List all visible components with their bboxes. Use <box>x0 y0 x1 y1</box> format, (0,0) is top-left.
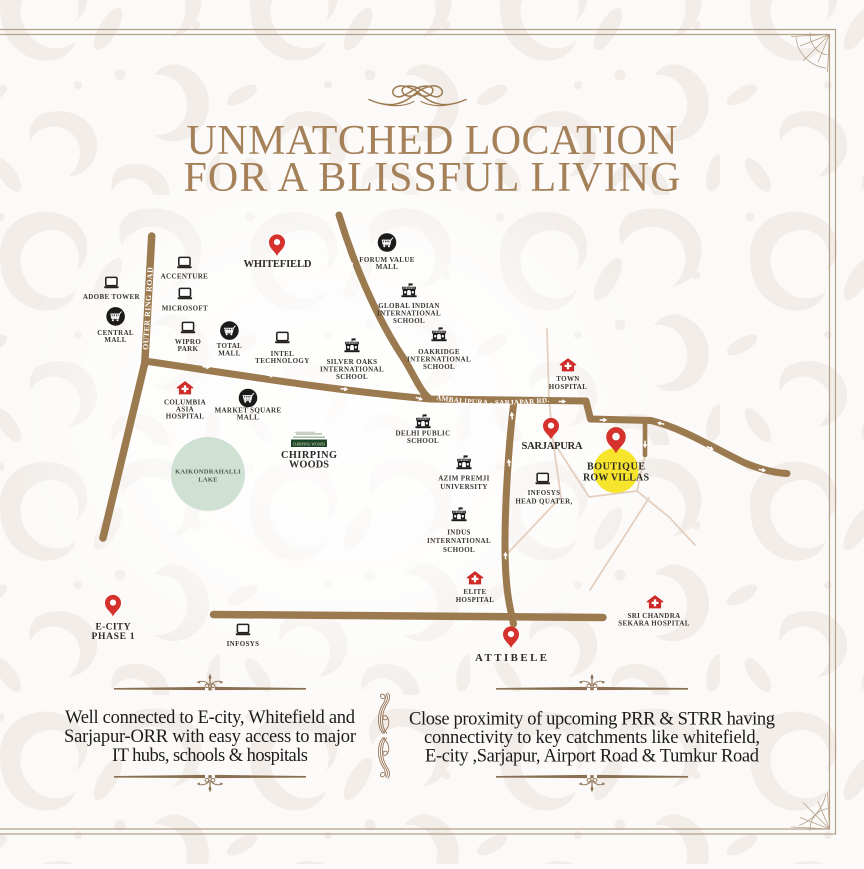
svg-text:LAKE: LAKE <box>198 477 218 484</box>
svg-text:Well connected to E-city, Whit: Well connected to E-city, Whitefield and <box>65 708 356 728</box>
svg-text:SCHOOL: SCHOOL <box>336 373 368 381</box>
svg-text:FOR A BLISSFUL LIVING: FOR A BLISSFUL LIVING <box>184 155 681 201</box>
svg-text:SCHOOL: SCHOOL <box>407 437 439 445</box>
svg-text:WOODS: WOODS <box>289 460 329 471</box>
svg-text:BOUTIQUE: BOUTIQUE <box>587 461 645 472</box>
svg-text:ATTIBELE: ATTIBELE <box>475 652 547 664</box>
svg-text:INFOSYS: INFOSYS <box>227 640 260 648</box>
svg-text:E-city ,Sarjapur, Airport Road: E-city ,Sarjapur, Airport Road & Tumkur … <box>425 747 760 767</box>
svg-text:ROW VILLAS: ROW VILLAS <box>583 472 649 483</box>
svg-text:WHITEFIELD: WHITEFIELD <box>244 259 312 270</box>
svg-text:INDUS: INDUS <box>447 528 471 536</box>
svg-text:CHIRPING WOODS: CHIRPING WOODS <box>293 442 325 446</box>
svg-text:PARK: PARK <box>178 345 199 353</box>
svg-text:TOWN: TOWN <box>556 375 579 383</box>
svg-text:TECHNOLOGY: TECHNOLOGY <box>255 357 309 365</box>
svg-text:MICROSOFT: MICROSOFT <box>162 304 208 312</box>
svg-text:MALL: MALL <box>218 349 240 357</box>
svg-text:KAIKONDRAHALLI: KAIKONDRAHALLI <box>175 469 241 476</box>
svg-text:HEAD QUATER,: HEAD QUATER, <box>515 498 572 506</box>
svg-text:INTERNATIONAL: INTERNATIONAL <box>427 537 491 545</box>
svg-text:HOSPITAL: HOSPITAL <box>166 412 204 420</box>
svg-text:SARJAPURA: SARJAPURA <box>522 441 583 452</box>
svg-text:UNIVERSITY: UNIVERSITY <box>440 483 487 491</box>
svg-text:AZIM PREMJI: AZIM PREMJI <box>438 474 490 482</box>
svg-text:SEKARA HOSPITAL: SEKARA HOSPITAL <box>618 619 689 627</box>
svg-text:ACCENTURE: ACCENTURE <box>161 272 209 280</box>
svg-text:Sarjapur-ORR with easy access: Sarjapur-ORR with easy access to major <box>64 727 356 747</box>
svg-text:MALL: MALL <box>376 263 398 271</box>
svg-text:DELHI PUBLIC: DELHI PUBLIC <box>396 429 451 437</box>
svg-text:ADOBE TOWER: ADOBE TOWER <box>83 293 141 301</box>
svg-text:INFOSYS: INFOSYS <box>528 489 561 497</box>
svg-text:SCHOOL: SCHOOL <box>393 317 425 325</box>
svg-text:ELITE: ELITE <box>463 588 486 596</box>
svg-text:HOSPITAL: HOSPITAL <box>549 383 587 391</box>
svg-text:HOSPITAL: HOSPITAL <box>456 596 494 604</box>
svg-text:MALL: MALL <box>104 336 126 344</box>
svg-text:IT hubs, schools & hospitals: IT hubs, schools & hospitals <box>112 746 308 766</box>
svg-text:PHASE 1: PHASE 1 <box>92 631 135 642</box>
svg-text:Close proximity of upcoming PR: Close proximity of upcoming PRR & STRR h… <box>409 710 775 730</box>
svg-text:SCHOOL: SCHOOL <box>423 363 455 371</box>
svg-text:connectivity to key catchments: connectivity to key catchments like whit… <box>424 728 760 748</box>
svg-text:MALL: MALL <box>237 414 259 422</box>
svg-text:SCHOOL: SCHOOL <box>443 546 475 554</box>
